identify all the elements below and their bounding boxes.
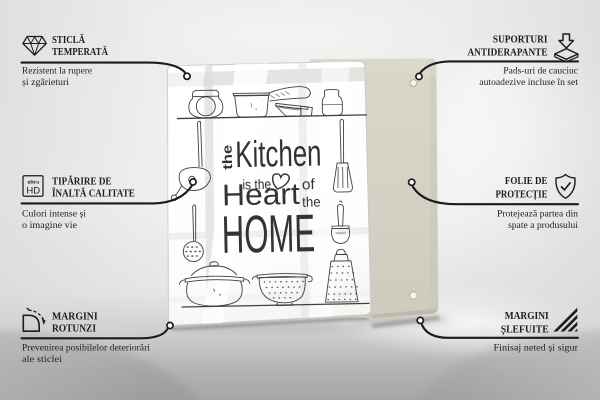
svg-text:MARGINI: MARGINI	[505, 311, 549, 322]
svg-text:Protejează partea din: Protejează partea din	[497, 210, 578, 220]
svg-text:autoadezive incluse în set: autoadezive incluse în set	[479, 78, 578, 88]
svg-text:Pads-uri de cauciuc: Pads-uri de cauciuc	[503, 67, 578, 77]
svg-text:HOME: HOME	[221, 205, 315, 265]
svg-text:MARGINI: MARGINI	[52, 311, 98, 322]
svg-text:TIPĂRIRE DE: TIPĂRIRE DE	[52, 175, 112, 187]
svg-text:of: of	[302, 176, 315, 193]
svg-text:ROTUNZI: ROTUNZI	[52, 323, 96, 334]
svg-text:the: the	[220, 144, 235, 170]
svg-text:Finisaj neted și sigur: Finisaj neted și sigur	[494, 344, 579, 354]
svg-text:STICLĂ: STICLĂ	[52, 34, 85, 46]
svg-text:Culori intense și: Culori intense și	[22, 210, 86, 220]
svg-text:TEMPERATĂ: TEMPERATĂ	[52, 46, 108, 58]
svg-text:ȘLEFUITE: ȘLEFUITE	[501, 325, 549, 336]
svg-text:FOLIE DE: FOLIE DE	[505, 176, 548, 187]
svg-text:Kitchen: Kitchen	[235, 132, 322, 176]
svg-text:ÎNALTĂ CALITATE: ÎNALTĂ CALITATE	[52, 187, 135, 199]
svg-text:ale sticlei: ale sticlei	[22, 355, 62, 365]
svg-text:spate a produsului: spate a produsului	[508, 221, 578, 231]
svg-text:PROTECȚIE: PROTECȚIE	[496, 190, 548, 201]
svg-text:HD: HD	[26, 186, 40, 197]
svg-text:o imagine vie: o imagine vie	[22, 221, 77, 231]
svg-text:ANTIDERAPANTE: ANTIDERAPANTE	[468, 48, 548, 59]
svg-text:Rezistent la rupere: Rezistent la rupere	[22, 67, 92, 77]
svg-text:Prevenirea posibilelor deterio: Prevenirea posibilelor deteriorări	[22, 344, 150, 354]
svg-text:și zgârieturi: și zgârieturi	[22, 78, 69, 88]
svg-text:SUPORTURI: SUPORTURI	[493, 35, 548, 46]
